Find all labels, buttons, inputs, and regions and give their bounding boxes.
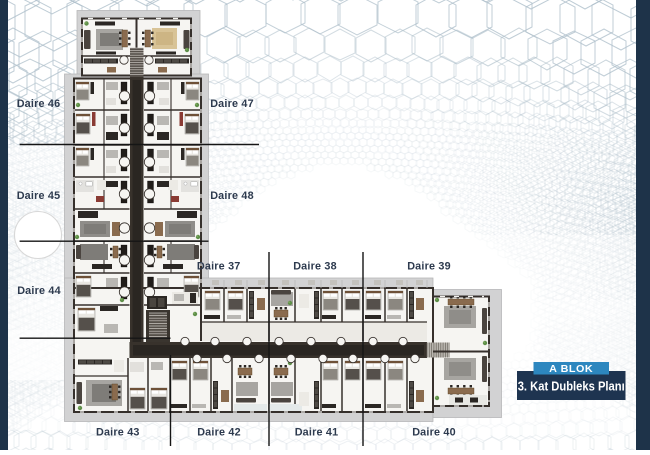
svg-text:Daire 44: Daire 44	[17, 285, 61, 297]
svg-text:Daire 45: Daire 45	[17, 190, 61, 202]
svg-text:Daire 39: Daire 39	[407, 261, 451, 273]
svg-text:Daire 46: Daire 46	[17, 98, 61, 110]
svg-text:Daire 48: Daire 48	[210, 190, 254, 202]
svg-text:A BLOK: A BLOK	[549, 363, 593, 375]
svg-text:Daire 37: Daire 37	[197, 261, 241, 273]
svg-text:Daire 43: Daire 43	[96, 427, 140, 439]
svg-text:Daire 38: Daire 38	[293, 261, 337, 273]
svg-text:Daire 47: Daire 47	[210, 98, 254, 110]
svg-text:Daire 40: Daire 40	[412, 427, 456, 439]
svg-text:Daire 41: Daire 41	[295, 427, 339, 439]
svg-text:Daire 42: Daire 42	[197, 427, 241, 439]
svg-text:3. Kat Dubleks Planı: 3. Kat Dubleks Planı	[518, 380, 625, 394]
